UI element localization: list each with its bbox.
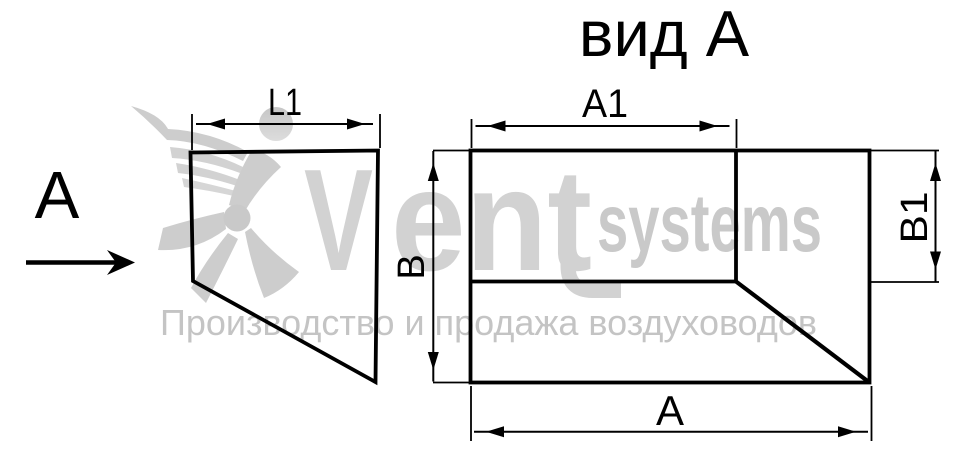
- svg-text:systems: systems: [597, 178, 822, 269]
- svg-text:вид А: вид А: [579, 0, 750, 70]
- svg-text:В: В: [391, 254, 433, 279]
- svg-text:А1: А1: [582, 82, 628, 126]
- svg-text:А: А: [656, 387, 684, 434]
- svg-text:V: V: [304, 139, 373, 301]
- svg-text:Производство и продажа воздухо: Производство и продажа воздуховодов: [160, 302, 817, 343]
- svg-text:L1: L1: [268, 82, 302, 124]
- svg-text:В1: В1: [894, 192, 936, 244]
- svg-text:А: А: [35, 158, 80, 233]
